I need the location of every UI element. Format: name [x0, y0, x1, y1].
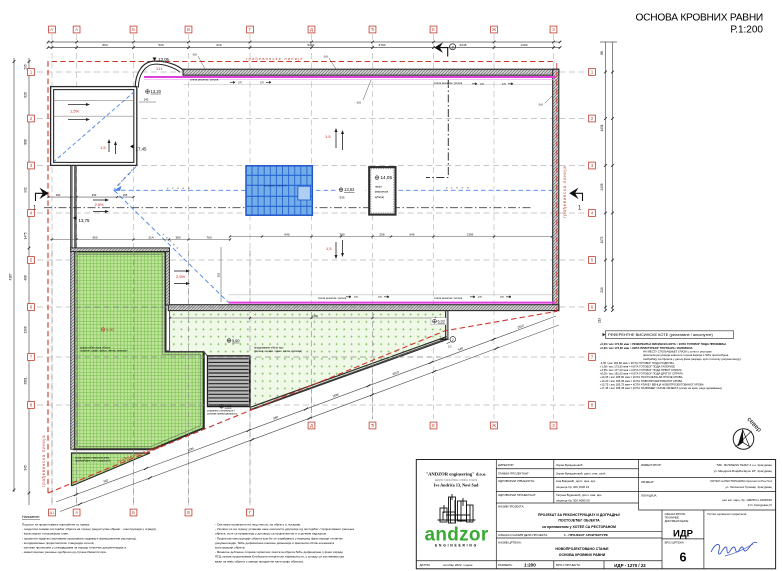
svg-text:ИНВЕСТИТОР:: ИНВЕСТИТОР:	[641, 463, 662, 467]
svg-text:3760: 3760	[379, 43, 386, 47]
svg-text:13,20: 13,20	[151, 89, 162, 94]
svg-text:А1: А1	[50, 511, 54, 515]
svg-text:Зоран Вукадиновић, дипл. инж.: Зоран Вукадиновић, дипл. инж. саоб.	[556, 472, 606, 476]
svg-text:НАЗИВ ПРОЈЕКТА:: НАЗИВ ПРОЈЕКТА:	[498, 504, 524, 508]
svg-text:1,5: 1,5	[100, 145, 106, 150]
svg-text:слепа решетка / ригола: слепа решетка / ригола	[434, 296, 463, 300]
svg-text:256: 256	[379, 232, 384, 236]
svg-text:А: А	[75, 510, 78, 515]
svg-text:слепа решетка / ригола: слепа решетка / ригола	[434, 81, 463, 85]
svg-text:грађевинска линија: грађевинска линија	[41, 435, 46, 487]
svg-text:13,52: 13,52	[344, 187, 355, 192]
svg-text:В: В	[187, 27, 190, 32]
svg-text:165: 165	[123, 193, 128, 197]
svg-text:Татјана Вујановић, дипл. инж.: Татјана Вујановић, дипл. инж. арх.	[556, 493, 602, 497]
svg-text:К.О. Крагујевац IV: К.О. Крагујевац IV	[748, 503, 772, 507]
svg-text:17,45: 17,45	[136, 146, 148, 151]
svg-text:ДИРЕКТОР:: ДИРЕКТОР:	[498, 463, 514, 467]
svg-text:ОСНОВА КРОВНИХ РАВНИ: ОСНОВА КРОВНИХ РАВНИ	[559, 553, 606, 557]
svg-text:-0,6: -0,6	[538, 103, 543, 107]
svg-text:+8,05 / апс 181,05 мнв = КОТА: +8,05 / апс 181,05 мнв = КОТА ГОТОВОГ ПО…	[600, 372, 683, 376]
svg-text:БРОЈ ПРОЈЕКТА:: БРОЈ ПРОЈЕКТА:	[556, 563, 581, 567]
svg-text:РАЗМЕРА:: РАЗМЕРА:	[498, 563, 513, 567]
svg-text:1175: 1175	[600, 236, 604, 243]
svg-text:ДОКУМЕНТАЦИЈЕ:: ДОКУМЕНТАЦИЈЕ:	[665, 519, 690, 523]
svg-text:88: 88	[600, 51, 604, 55]
svg-text:2,5%: 2,5%	[176, 274, 186, 279]
svg-text:345: 345	[24, 465, 28, 471]
svg-text:5,60: 5,60	[232, 338, 240, 343]
svg-text:ОЗНАКА И НАЗИВ ДЕЛА ПРОЈЕКТА:: ОЗНАКА И НАЗИВ ДЕЛА ПРОЈЕКТА:	[498, 533, 548, 537]
svg-text:1,5: 1,5	[326, 246, 332, 251]
svg-text:Е: Е	[432, 27, 435, 32]
svg-text:520: 520	[158, 43, 163, 47]
svg-text:219: 219	[598, 318, 602, 324]
svg-text:силазак према дворишту: силазак према дворишту	[207, 412, 238, 415]
svg-text:1431: 1431	[600, 124, 604, 131]
svg-text:- Финалне дебљине слојева терм: - Финалне дебљине слојева термичког омот…	[215, 550, 343, 554]
svg-text:соларни / панели: соларни / панели	[264, 184, 287, 188]
svg-text:1,5%: 1,5%	[70, 109, 80, 114]
svg-text:у с п о н: у с п о н	[167, 186, 191, 190]
svg-text:(паркинг, сарки, фикус, жетва,: (паркинг, сарки, фикус, жетва, кузмице)	[80, 349, 127, 353]
svg-text:октобар 2022. године: октобар 2022. године	[443, 563, 473, 567]
svg-text:Ive Andrića 13, Novi Sad: Ive Andrića 13, Novi Sad	[434, 483, 479, 488]
svg-text:302: 302	[217, 272, 221, 277]
svg-text:ЛОКАЦИЈА:: ЛОКАЦИЈА:	[641, 494, 657, 498]
svg-text:932: 932	[24, 187, 28, 193]
svg-text:друштво за пројектовање, извођ: друштво за пројектовање, извођење и надз…	[435, 479, 478, 482]
svg-text:део кат. парц. бр. 10825/3 и 1: део кат. парц. бр. 10825/3 и 10825/20	[722, 498, 772, 502]
svg-text:380: 380	[339, 232, 344, 236]
svg-text:646: 646	[409, 232, 414, 236]
svg-text:"MR - BUSINESS TEAM" d.o.o. Кр: "MR - BUSINESS TEAM" d.o.o. Крагујевац	[716, 463, 772, 467]
svg-text:-3,36 / апс 169,80 мнв = КОТА: -3,36 / апс 169,80 мнв = КОТА ГОТОВОГ ПО…	[600, 361, 674, 365]
svg-text:1:200: 1:200	[524, 563, 536, 568]
svg-text:објекта, исте се пријављују у: објекта, исте се пријављују у договору с…	[215, 532, 327, 536]
svg-text:2861: 2861	[24, 377, 28, 384]
svg-text:УЛ: УЛ	[378, 295, 382, 299]
svg-text:ОСНОВА КРОВНИХ РАВНИ: ОСНОВА КРОВНИХ РАВНИ	[635, 13, 763, 24]
svg-text:Ђ: Ђ	[371, 423, 375, 428]
svg-text:Потпис одговорног пројектанта:: Потпис одговорног пројектанта:	[707, 512, 747, 516]
svg-text:УЛ: УЛ	[502, 82, 506, 86]
svg-text:1398: 1398	[24, 326, 28, 333]
svg-text:- координисање пројектантских: - координисање пројектантских стандарда …	[22, 541, 94, 545]
svg-text:ПОСТОЈЕЋЕГ ОБЈЕКТА: ПОСТОЈЕЋЕГ ОБЈЕКТА	[558, 519, 600, 523]
svg-text:13,05: 13,05	[158, 57, 170, 62]
svg-text:andzor: andzor	[424, 524, 488, 545]
svg-text:В: В	[187, 510, 190, 515]
svg-text:Подлоге за пројектовање коришћ: Подлоге за пројектовање коришћене су пре…	[22, 523, 90, 527]
svg-text:грађевинска линија: грађевинска линија	[562, 166, 567, 218]
svg-text:+0,00 / апс 172,60 мнв = КОТ: +0,00 / апс 172,60 мнв = КОТА ПРИСТУПНОГ…	[600, 346, 693, 350]
svg-text:804: 804	[102, 43, 107, 47]
svg-text:- Све мере проверити на лицу м: - Све мере проверити на лицу места, на о…	[215, 523, 301, 527]
svg-text:ПРОЈЕКАТ ЗА РЕКОНСТРУКЦИЈУ И: ПРОЈЕКАТ ЗА РЕКОНСТРУКЦИЈУ И ДОГРАДЊУ	[538, 513, 621, 517]
svg-text:Ђ: Ђ	[371, 27, 375, 32]
svg-text:УЛ: УЛ	[500, 295, 504, 299]
svg-text:кућица): кућица)	[375, 195, 385, 199]
svg-text:760: 760	[206, 235, 211, 239]
svg-text:2246: 2246	[460, 43, 467, 47]
svg-text:+3,95 / апс 177,20 мнв = КОТА: +3,95 / апс 177,20 мнв = КОТА ГОТОВОГ ПО…	[600, 368, 682, 372]
svg-text:ОДГОВОРНИ УРБАНИСТА:: ОДГОВОРНИ УРБАНИСТА:	[498, 479, 535, 483]
svg-text:6: 6	[680, 550, 687, 564]
svg-text:408: 408	[24, 275, 28, 281]
svg-text:-0,6: -0,6	[323, 55, 328, 59]
svg-text:240: 240	[144, 98, 149, 102]
svg-text:ОБЈЕКАТ:: ОБЈЕКАТ:	[641, 480, 655, 484]
svg-text:960: 960	[92, 235, 97, 239]
svg-text:2: 2	[452, 338, 454, 342]
svg-text:- Уколико се на терену установ: - Уколико се на терену установе неке око…	[215, 527, 354, 531]
svg-text:214: 214	[148, 235, 153, 239]
svg-text:ДАТУМ:: ДАТУМ:	[420, 563, 431, 567]
svg-text:Е: Е	[432, 423, 435, 428]
svg-text:1,5: 1,5	[325, 134, 331, 139]
svg-text:2,5%: 2,5%	[95, 202, 105, 207]
svg-text:-0,6: -0,6	[356, 101, 361, 105]
svg-text:РЕФЕРЕНТНЕ ВИСИНСКЕ КОТЕ (рела: РЕФЕРЕНТНЕ ВИСИНСКЕ КОТЕ (релативне / ап…	[608, 332, 714, 337]
svg-text:(саобраћајни плато дворишта): (саобраћајни плато дворишта)	[75, 460, 111, 463]
svg-text:Ж: Ж	[492, 423, 496, 428]
svg-text:лиценца бр: 200 1536 16: лиценца бр: 200 1536 16	[556, 485, 590, 489]
svg-text:4,66: 4,66	[225, 405, 232, 409]
svg-text:+13,20 / апс 185,95 мнв = КОТА: +13,20 / апс 185,95 мнв = КОТА НОВОПРОЈЕ…	[600, 379, 683, 383]
svg-text:Б: Б	[132, 27, 135, 32]
svg-text:ОДГОВОРНИ ПРОЈЕКТАНТ:: ОДГОВОРНИ ПРОЈЕКТАНТ:	[498, 493, 536, 497]
svg-text:ГЛАВНИ ПРОЈЕКТАНТ:: ГЛАВНИ ПРОЈЕКТАНТ:	[498, 472, 530, 476]
svg-text:Р.1:200: Р.1:200	[730, 25, 763, 36]
svg-text:ОЗНАКА ВРСТЕ:: ОЗНАКА ВРСТЕ:	[665, 512, 686, 516]
svg-text:+0,00 / апс 172,60 мнв = РЕФ: +0,00 / апс 172,60 мнв = РЕФЕРЕНТНА ВИСИ…	[600, 342, 726, 346]
svg-text:конструкције објекта.: конструкције објекта.	[215, 546, 246, 550]
svg-text:+17,45 / апс 188,45 мнв = КОТА: +17,45 / апс 188,45 мнв = КОТА НАЈВИШЕГ …	[600, 386, 722, 390]
svg-text:БРОЈ ЦРТЕЖА:: БРОЈ ЦРТЕЖА:	[665, 541, 685, 545]
svg-text:628: 628	[24, 92, 28, 98]
svg-text:лиценца бр: 300 Н095 09: лиценца бр: 300 Н095 09	[556, 498, 590, 502]
svg-text:295: 295	[24, 64, 28, 70]
svg-text:9,90: 9,90	[106, 327, 115, 332]
svg-text:380: 380	[175, 235, 180, 239]
svg-text:НОВОПРОЈЕКТОВАНО СТАЊЕ: НОВОПРОЈЕКТОВАНО СТАЊЕ	[555, 547, 609, 551]
svg-text:1200: 1200	[521, 43, 528, 47]
svg-text:НАЗИВ ЦРТЕЖА:: НАЗИВ ЦРТЕЖА:	[498, 540, 522, 544]
svg-text:(машинска: (машинска	[375, 190, 389, 194]
svg-text:+13,75 / апс 185,75 мнв = КОТА: +13,75 / апс 185,75 мнв = КОТА АТИКЕ / В…	[600, 382, 704, 386]
svg-text:НА МЕСТУ СПОЉАШЊЕГ УЛАЗА у хо: НА МЕСТУ СПОЉАШЊЕГ УЛАЗА у хотел и ресто…	[643, 350, 712, 354]
svg-text:УЛ: УЛ	[260, 80, 264, 84]
svg-text:Напомене:: Напомене:	[22, 515, 40, 519]
svg-text:13,75: 13,75	[79, 218, 91, 223]
svg-text:УЛ: УЛ	[238, 80, 242, 84]
svg-text:630: 630	[92, 193, 97, 197]
svg-text:219: 219	[600, 287, 604, 293]
svg-text:ПГД, према прорачунима Елабора: ПГД, према прорачунима Елабората енергет…	[215, 555, 344, 559]
svg-text:5434: 5434	[308, 43, 315, 47]
svg-text:А': А'	[50, 27, 54, 32]
svg-text:2435: 2435	[600, 183, 604, 190]
svg-text:1 - ПРОЈЕКАТ АРХИТЕКТУРЕ: 1 - ПРОЈЕКАТ АРХИТЕКТУРЕ	[564, 533, 608, 537]
svg-text:- захтеви прописани у стандард: - захтеви прописани у стандардима за изр…	[22, 546, 126, 550]
svg-text:слепа решетка / ригола: слепа решетка / ригола	[318, 296, 347, 300]
svg-text:Ж: Ж	[492, 27, 496, 32]
svg-text:у с п о н: у с п о н	[446, 185, 470, 189]
svg-text:935: 935	[339, 196, 344, 200]
svg-text:ХОТЕЛ са РЕСТОРАНОМ спратности: ХОТЕЛ са РЕСТОРАНОМ спратности По+П+2	[710, 479, 772, 483]
svg-text:А: А	[75, 27, 78, 32]
svg-text:888: 888	[24, 139, 28, 145]
svg-text:- катастарско топографски план: - катастарско топографски план,	[22, 532, 69, 536]
svg-text:1395: 1395	[467, 232, 474, 236]
svg-text:"ANDZOR engineering" d.o.o.: "ANDZOR engineering" d.o.o.	[426, 472, 487, 477]
svg-text:грађевинске линије: грађевинске линије	[246, 57, 304, 61]
svg-text:важе за ниво објекта у оквиру: важе за ниво објекта у оквиру предметне …	[215, 559, 304, 563]
svg-text:документације, биће дефинисане: документације, биће дефинисане коначне д…	[215, 541, 334, 545]
svg-text:ТЕХНИЧКЕ: ТЕХНИЧКЕ	[665, 515, 679, 519]
svg-text:-0,6: -0,6	[192, 53, 197, 57]
svg-text:лифт: лифт	[375, 185, 383, 189]
svg-text:ENGINEERING: ENGINEERING	[435, 544, 478, 548]
svg-text:- геодетски снимак постојећег: - геодетски снимак постојећег објекта на…	[22, 527, 157, 531]
svg-text:(висинска регулација нивелете: (висинска регулација нивелете терена вар…	[643, 353, 729, 357]
svg-text:са пренаменом у ХОТЕЛ СА РЕСТО: са пренаменом у ХОТЕЛ СА РЕСТОРАНОМ	[542, 525, 616, 529]
svg-text:Ана Вирјевић, дипл. инж. арх.: Ана Вирјевић, дипл. инж. арх.	[556, 479, 596, 483]
svg-text:УЛ: УЛ	[480, 82, 484, 86]
svg-text:- Пројектом конструкције објек: - Пројектом конструкције објекта који ће…	[215, 536, 343, 540]
svg-text:- инвестиционо решење одобрено: - инвестиционо решење одобрено од стране…	[22, 550, 107, 554]
svg-text:14,05: 14,05	[381, 175, 393, 180]
svg-text:ул. Миодрага Влајића Шуле 18",: ул. Миодрага Влајића Шуле 18", Крагујева…	[714, 469, 773, 473]
svg-text:+1,98 / апс 173,50 мнв = КОТА: +1,98 / апс 173,50 мнв = КОТА ГОТОВОГ ПО…	[600, 364, 675, 368]
svg-text:ИДР - 1270 / 22: ИДР - 1270 / 22	[614, 563, 646, 568]
svg-text:1290: 1290	[312, 314, 318, 318]
svg-text:ИДР: ИДР	[673, 528, 694, 539]
svg-text:616: 616	[216, 43, 221, 47]
svg-text:(тераса, нераве, храни, жетва,: (тераса, нераве, храни, жетва, кузмице)	[254, 349, 302, 353]
svg-text:Б: Б	[132, 510, 135, 515]
svg-text:290: 290	[56, 193, 61, 197]
svg-text:слепа решетка / ригола: слепа решетка / ригола	[190, 77, 219, 81]
svg-text:1475: 1475	[24, 232, 28, 239]
svg-text:111: 111	[156, 67, 163, 71]
svg-text:Зоран Вукадиновић: Зоран Вукадиновић	[556, 463, 583, 467]
svg-text:Д: Д	[310, 27, 313, 32]
svg-text:саобраћају са објеката у даљој: саобраћају са објеката у даљој фази разр…	[643, 357, 741, 361]
svg-text:УЛ: УЛ	[478, 295, 482, 299]
svg-text:645: 645	[284, 232, 289, 236]
svg-text:6,03: 6,03	[438, 320, 445, 324]
svg-text:+13,05 / апс 185,80 мнв = КОТА: +13,05 / апс 185,80 мнв = КОТА ПОСТОЈЕЋЕ…	[600, 375, 683, 379]
svg-text:ул. Лепенички булевар, Крагује: ул. Лепенички булевар, Крагујевац	[725, 485, 772, 489]
svg-text:4187: 4187	[9, 273, 13, 280]
svg-text:Д: Д	[310, 423, 313, 428]
svg-text:УЛ: УЛ	[354, 295, 358, 299]
svg-text:- пројектни задатак (засновани: - пројектни задатак (засновани програмск…	[22, 536, 137, 540]
